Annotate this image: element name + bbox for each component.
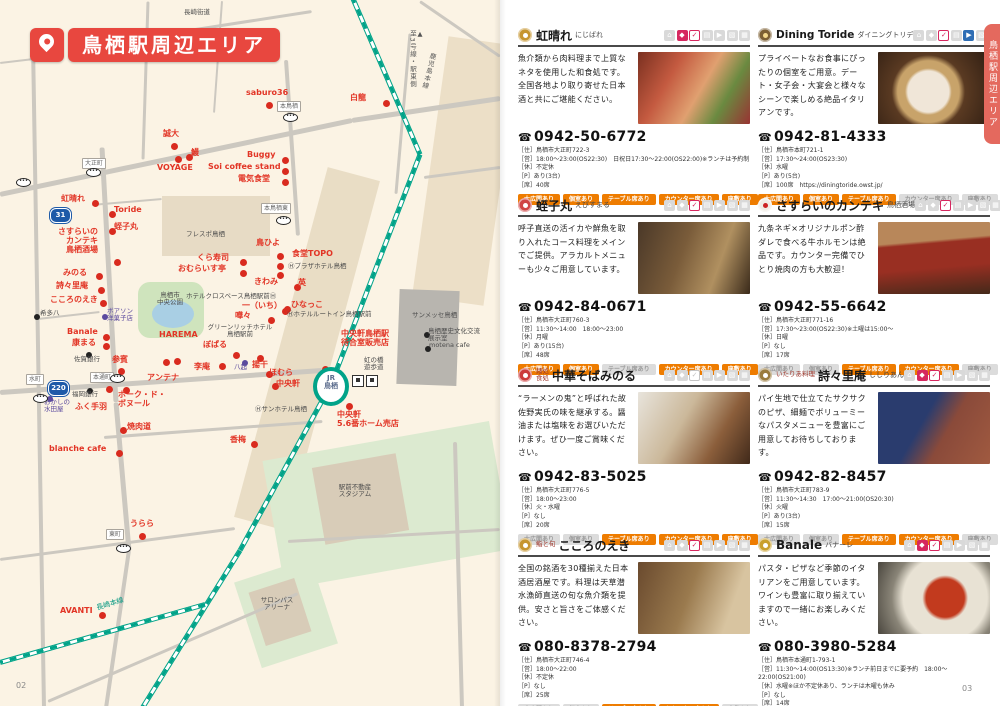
map-label: 虹晴れ [61,194,85,203]
map-label: 蛭子丸 [114,222,138,231]
detail-line: ［住］鳥栖市大正町771-16 [758,317,990,326]
amenity-icon-6: ▧ [727,370,738,381]
header-divider [518,45,750,47]
amenity-icons: ⌂◆✓▤▶▧▦ [904,370,990,381]
header-divider [518,555,750,557]
amenity-icon-6: ▧ [967,370,978,381]
restaurant-photo [878,222,990,294]
restaurant-card: 鮨と旬 こころのえき ⌂◆✓▤▶▧▦ 全国の銘酒を30種揃えた日本酒居酒屋です。… [518,537,750,706]
restaurant-description: パイ生地で仕立てたサクサクのピザ、細麺でボリューミーなパスタメニューを豊富にご用… [758,392,872,460]
map-label: 英 [298,278,306,287]
detail-line: ［営］11:30～14:00(OS13:30)※ランチ前日までに要予約 18:0… [758,666,990,683]
restaurant-photo [638,222,750,294]
detail-line: ［席］17席 [758,352,990,361]
amenity-icon-1: ⌂ [664,540,675,551]
amenity-icons: ⌂◆✓▤▶▧▦ [904,540,990,551]
amenity-icon-4: ▤ [702,30,713,41]
category-icon [758,368,772,382]
header-divider [758,45,990,47]
restaurant-details: ［住］鳥栖市大正町760-3［営］11:30～14:00 18:00～23:00… [518,317,750,360]
phone-number: ☎080-8378-2794 [518,639,750,655]
facility-pictogram-icon [366,375,378,387]
map-poi-dot [175,156,182,163]
card-header: 麺処 食処 中華そばみのる ⌂◆✓▤▶▧▦ [518,367,750,383]
map-label: 中央軒 5.6番ホーム売店 [337,410,399,428]
card-header: Banale バナーレ ⌂◆✓▤▶▧▦ [758,537,990,553]
restaurant-name: こころのえき [559,537,631,554]
restaurant-name-kana: ダイニングトリデ [857,30,913,40]
header-divider [758,215,990,217]
amenity-icon-2: ◆ [677,30,688,41]
map-label: 福岡銀行 [72,391,98,398]
map-label: VOYAGE [157,163,193,172]
amenity-icon-2: ◆ [677,200,688,211]
detail-line: ［P］あり(15台) [518,343,750,352]
amenity-icon-5: ▶ [965,200,976,211]
map-label: ほむら [269,368,293,377]
amenity-icon-5: ▶ [714,540,725,551]
restaurant-details: ［住］鳥栖市大正町771-16［営］17:30～23:00(OS22:30)※土… [758,317,990,360]
phone-number: ☎0942-83-5025 [518,469,750,485]
map-label: さすらいの カンテキ 鳥栖酒場 [50,227,98,255]
amenity-icon-6: ▧ [727,200,738,211]
detail-line: ［P］なし [518,683,750,692]
detail-line: ［休］月曜 [518,334,750,343]
phone-icon: ☎ [758,131,772,144]
bus-stop-icon: ••• [86,168,101,177]
map-label: 誠大 [163,129,179,138]
detail-line: ［住］鳥栖市大正町746-4 [518,657,750,666]
map-label: 本鳥栖東 [261,203,291,214]
restaurant-description: 九条ネギ×オリジナルポン酢ダレで食べる牛ホルモンは絶品です。カウンター完備でひと… [758,222,872,276]
map-label: 揚干 [252,360,268,369]
restaurant-name: 中華そばみのる [552,367,636,384]
map-poi-dot [96,273,103,280]
phone-icon: ☎ [518,301,532,314]
map-label: 本鳥栖 [277,101,301,112]
detail-line: ［席］25席 [518,692,750,701]
map-poi-dot [98,287,105,294]
guidebook-spread: JR 鳥栖 長崎街道saburo36白龍本鳥栖本鳥栖東誠大鰻VOYAGEBugg… [0,0,1000,706]
category-icon [758,538,772,552]
amenity-icon-2: ◆ [917,370,928,381]
bus-stop-icon: ••• [16,178,31,187]
stadium-building [312,453,409,545]
detail-line: ［休］火曜 [758,504,990,513]
map-poi-dot [219,363,226,370]
restaurant-name: Dining Toride [776,29,854,41]
map-poi-dot [277,263,284,270]
restaurant-details: ［住］鳥栖市大正町776-5［営］18:00～23:00［休］火・水曜［P］なし… [518,487,750,530]
amenity-icons: ⌂◆✓▤▶▧▦ [664,370,750,381]
map-label: 康まる [72,338,96,347]
map-poi-dot [240,270,247,277]
amenity-icon-3: ✓ [689,370,700,381]
detail-line: ［休］水曜 [758,164,990,173]
phone-number: ☎080-3980-5284 [758,639,990,655]
restaurant-card: さすらいのカンテキ 鳥栖酒場 ⌂◆✓▤▶▧▦ 九条ネギ×オリジナルポン酢ダレで食… [758,197,990,375]
map-poi-dot [99,612,106,619]
bus-stop-icon: ••• [283,113,298,122]
map-label: AVANTI [60,606,93,615]
map-poi-dot [92,200,99,207]
amenity-icon-6: ▧ [967,540,978,551]
map-label: ボアソン 洋菓子店 [107,308,133,323]
map-label: 白龍 [350,93,366,102]
restaurant-name-kana: にじばれ [575,30,603,40]
restaurant-card: 虹晴れ にじばれ ⌂◆✓▤▶▧▦ 魚介類から肉料理まで上質なネタを使用した和食処… [518,27,750,205]
detail-line: ［P］なし [758,343,990,352]
phone-icon: ☎ [518,471,532,484]
detail-line: ［休］火・水曜 [518,504,750,513]
bus-stop-icon: ••• [33,394,48,403]
map-poi-dot [174,358,181,365]
map-label: 食堂TOPO [292,249,333,258]
map-poi-dot [282,179,289,186]
detail-line: ［席］48席 [518,352,750,361]
restaurant-details: ［住］鳥栖市大正町783-9［営］11:30～14:30 17:00～21:00… [758,487,990,530]
map-label: 参賓 [112,355,128,364]
map-label: Ⓗプラザホテル鳥栖 [288,263,347,270]
route-shield: 31 [50,208,71,223]
walkway-pictogram-icon [352,375,364,387]
map-label: motena cafe [429,342,470,349]
map-title-banner: 鳥栖駅周辺エリア [30,28,280,62]
phone-icon: ☎ [518,641,532,654]
restaurant-photo [638,562,750,634]
map-poi-dot [100,300,107,307]
amenity-icon-6: ▧ [727,30,738,41]
restaurant-details: ［住］鳥栖市本町721-1［営］17:30～24:00(OS23:30)［休］水… [758,147,990,190]
jr-tosu-station-marker: JR 鳥栖 [313,367,349,406]
card-header: 蛭子丸 えびすまる ⌂◆✓▤▶▧▦ [518,197,750,213]
detail-line: ［住］鳥栖市大正町722-3 [518,147,750,156]
map-label: 鰻 [191,148,199,157]
phone-icon: ☎ [518,131,532,144]
detail-line: ［休］不定休 [518,674,750,683]
map-label: 鳥栖市 中央公園 [157,292,183,307]
restaurant-photo [878,392,990,464]
amenity-icons: ⌂◆✓▤▶▧▦ [915,200,1000,211]
map-poi-dot [277,272,284,279]
area-map: JR 鳥栖 長崎街道saburo36白龍本鳥栖本鳥栖東誠大鰻VOYAGEBugg… [0,0,500,706]
map-label: サロンパス アリーナ [261,597,294,612]
detail-line: ［休］日曜 [758,334,990,343]
amenity-icon-7: ▦ [739,370,750,381]
map-poi-dot [251,441,258,448]
amenity-icon-1: ⌂ [904,370,915,381]
map-label: 佐賀銀行 [74,356,100,363]
amenity-icon-3: ✓ [929,540,940,551]
phone-icon: ☎ [758,471,772,484]
restaurant-card: Banale バナーレ ⌂◆✓▤▶▧▦ パスタ・ピザなど季節のイタリアンをご用意… [758,537,990,706]
map-poi-dot [266,102,273,109]
map-label: Toride [114,205,142,214]
amenity-icon-5: ▶ [714,370,725,381]
map-label: 焼肉道 [127,422,151,431]
detail-line: ［営］11:30～14:00 18:00～23:00 [518,326,750,335]
amenity-icon-2: ◆ [677,540,688,551]
amenity-icon-1: ⌂ [664,370,675,381]
restaurant-details: ［住］鳥栖市本通町1-793-1［営］11:30～14:00(OS13:30)※… [758,657,990,706]
page-number-left: 02 [16,681,26,690]
map-label: saburo36 [246,88,288,97]
restaurant-category-label: いたりあ料理 [776,371,815,378]
restaurant-description: 呼子直送の活イカや鮮魚を取り入れたコース料理をメインでご提供。アラカルトメニュー… [518,222,632,276]
map-label: フレスポ鳥栖 [186,231,225,238]
map-label: 八起 [234,364,247,371]
detail-line: ［P］あり(5台) [758,173,990,182]
detail-line: ［P］なし [518,513,750,522]
map-label: アンテナ [147,373,179,382]
restaurant-category-label: 麺処 食処 [536,368,549,382]
map-label: みのる [63,268,87,277]
amenity-icon-6: ▧ [978,200,989,211]
restaurant-name-kana: バナーレ [825,540,853,550]
map-poi-dot [277,253,284,260]
map-label: おむらいす亭 [178,264,226,273]
phone-number: ☎0942-50-6772 [518,129,750,145]
map-poi-dot [139,533,146,540]
map-poi-dot [120,427,127,434]
detail-line: ［住］鳥栖市大正町783-9 [758,487,990,496]
detail-line: ［住］鳥栖市本町721-1 [758,147,990,156]
amenity-icon-5: ▶ [714,30,725,41]
map-label: 電気食堂 [238,174,270,183]
detail-line: ［住］鳥栖市大正町776-5 [518,487,750,496]
detail-line: ［休］水曜※ほか不定休あり、ランチは木曜も休み [758,683,990,692]
map-poi-dot [103,343,110,350]
phone-number: ☎0942-81-4333 [758,129,990,145]
phone-number: ☎0942-82-8457 [758,469,990,485]
map-label: ぼぱる [203,340,227,349]
map-poi-dot [114,259,121,266]
map-label: おかしの 水田屋 [44,399,70,414]
amenity-icon-7: ▦ [739,30,750,41]
restaurant-name-kana: ししりあん [869,370,904,380]
detail-line: ［休］不定休 [518,164,750,173]
map-label: 中央軒 [276,379,300,388]
map-label: Banale [67,327,98,336]
restaurant-photo [638,52,750,124]
card-header: さすらいのカンテキ 鳥栖酒場 ⌂◆✓▤▶▧▦ [758,197,990,213]
amenity-icon-3: ✓ [940,200,951,211]
header-divider [518,215,750,217]
railway-segment [140,549,242,706]
detail-line: ［営］17:30～23:00(OS22:30)※土曜は15:00～ [758,326,990,335]
map-label: 詩々里庵 [56,281,88,290]
map-label: 希多八 [40,310,60,317]
map-poi-dot [240,259,247,266]
restaurant-description: 全国の銘酒を30種揃えた日本酒居酒屋です。料理は天草潜水漁師直送の旬な魚介類を提… [518,562,632,630]
amenity-icon-2: ◆ [677,370,688,381]
map-label: 水町 [26,374,44,385]
restaurant-name-kana: 鳥栖酒場 [887,200,915,210]
amenity-icon-7: ▦ [990,200,1000,211]
amenity-icon-2: ◆ [926,30,937,41]
restaurant-photo [878,562,990,634]
amenity-icon-2: ◆ [928,200,939,211]
restaurant-card: 蛭子丸 えびすまる ⌂◆✓▤▶▧▦ 呼子直送の活イカや鮮魚を取り入れたコース料理… [518,197,750,375]
restaurant-listings: 03 虹晴れ にじばれ ⌂◆✓▤▶▧▦ 魚介類から肉料理まで上質なネタを使用した… [500,0,1000,706]
page-title: 鳥栖駅周辺エリア [68,28,280,62]
restaurant-name: さすらいのカンテキ [776,197,884,214]
phone-icon: ☎ [758,641,772,654]
map-label: 東町 [106,529,124,540]
map-label: 鳥ひよ [256,238,280,247]
restaurant-details: ［住］鳥栖市大正町746-4［営］18:00～22:00［休］不定休［P］なし［… [518,657,750,700]
page-fold [494,0,506,706]
detail-line: ［住］鳥栖市本通町1-793-1 [758,657,990,666]
restaurant-description: 魚介類から肉料理まで上質なネタを使用した和食処です。全国各地より取り寄せた日本酒… [518,52,632,106]
card-header: 鮨と旬 こころのえき ⌂◆✓▤▶▧▦ [518,537,750,553]
category-icon [518,28,532,42]
amenity-icon-5: ▶ [963,30,974,41]
amenity-icon-1: ⌂ [904,540,915,551]
category-icon [518,198,532,212]
amenity-icon-3: ✓ [929,370,940,381]
map-poi-dot [282,157,289,164]
map-poi-dot [103,334,110,341]
restaurant-name-kana: えびすまる [575,200,610,210]
bus-stop-icon: ••• [116,544,131,553]
amenity-icon-4: ▤ [702,370,713,381]
map-poi-dot [163,359,170,366]
map-label: うらら [130,519,154,528]
header-divider [758,385,990,387]
category-icon [518,368,532,382]
card-header: いたりあ料理 詩々里庵 ししりあん ⌂◆✓▤▶▧▦ [758,367,990,383]
detail-line: ［席］14席 [758,700,990,706]
restaurant-photo [878,52,990,124]
map-label: 虹の橋 遊歩道 [364,357,384,372]
card-header: 虹晴れ にじばれ ⌂◆✓▤▶▧▦ [518,27,750,43]
map-label: 一（いち） [242,301,282,310]
detail-line: ［席］40席 [518,182,750,191]
map-poi-dot [106,386,113,393]
map-label: Ⓗサンホテル鳥栖 [255,406,307,413]
road-segment [0,58,34,64]
amenity-icon-1: ⌂ [664,200,675,211]
amenity-icon-3: ✓ [689,200,700,211]
map-label: グリーンリッチホテル 鳥栖駅前 [208,324,273,339]
restaurant-description: パスタ・ピザなど季節のイタリアンをご用意しています。ワインも豊富に取り揃えていま… [758,562,872,630]
detail-line: ［営］11:30～14:30 17:00～21:00(OS20:30) [758,496,990,505]
detail-line: ［住］鳥栖市大正町760-3 [518,317,750,326]
amenity-icons: ⌂◆✓▤▶▧▦ [664,30,750,41]
restaurant-name: 詩々里庵 [818,367,866,384]
detail-line: ［席］100席 https://diningtoride.owst.jp/ [758,182,990,191]
detail-line: ［P］あり(3台) [758,513,990,522]
amenity-icon-4: ▤ [951,30,962,41]
map-label: こころのえき [50,295,98,304]
amenity-icons: ⌂◆✓▤▶▧▦ [664,540,750,551]
map-label: ホテルクロスベース鳥栖駅前Ⓗ [186,293,276,300]
amenity-icon-4: ▤ [702,540,713,551]
amenity-icon-5: ▶ [714,200,725,211]
amenity-icon-5: ▶ [954,370,965,381]
amenity-icon-3: ✓ [689,540,700,551]
amenity-icon-3: ✓ [689,30,700,41]
amenity-icon-1: ⌂ [915,200,926,211]
map-label: 嘩々 [235,311,251,320]
restaurant-card: 麺処 食処 中華そばみのる ⌂◆✓▤▶▧▦ “ラーメンの鬼”と呼ばれた故佐野実氏… [518,367,750,545]
restaurant-category-label: 鮨と旬 [536,541,556,548]
amenity-icon-4: ▤ [942,540,953,551]
amenity-icon-4: ▤ [953,200,964,211]
detail-line: ［P］なし [758,692,990,701]
amenity-icon-7: ▦ [979,370,990,381]
map-label: ひなっこ [291,300,323,309]
map-poi-dot [233,352,240,359]
header-divider [518,385,750,387]
map-label: HAREMA [159,330,198,339]
map-label: 長崎街道 [184,9,210,16]
map-label: Ⓗホテルルートイン鳥栖駅前 [287,311,372,318]
map-label: くら寿司 [197,253,229,262]
map-poi-dot [383,100,390,107]
amenity-icon-7: ▦ [739,200,750,211]
amenity-icon-3: ✓ [938,30,949,41]
map-poi-dot [171,143,178,150]
map-label: 香梅 [230,435,246,444]
restaurant-name: 虹晴れ [536,27,572,44]
road-segment [142,1,150,159]
map-poi-dot [346,403,353,410]
amenity-icon-1: ⌂ [913,30,924,41]
card-header: Dining Toride ダイニングトリデ ⌂◆✓▤▶▧▦ [758,27,990,43]
detail-line: ［P］あり(3台) [518,173,750,182]
map-label: blanche cafe [49,444,106,453]
bus-stop-icon: ••• [276,216,291,225]
section-side-tab: 鳥栖駅周辺エリア [984,24,1000,144]
route-shield: 220 [48,381,69,396]
phone-number: ☎0942-84-0671 [518,299,750,315]
amenity-icon-7: ▦ [739,540,750,551]
map-pin-icon [30,28,64,62]
amenity-icon-4: ▤ [942,370,953,381]
page-number-right: 03 [962,684,972,693]
phone-icon: ☎ [758,301,772,314]
amenity-icon-1: ⌂ [664,30,675,41]
map-poi-dot [282,168,289,175]
phone-number: ☎0942-55-6642 [758,299,990,315]
detail-line: ［席］20席 [518,522,750,531]
building-block [162,196,270,256]
restaurant-name: Banale [776,538,822,552]
map-label: Buggy [247,150,275,159]
restaurant-card: Dining Toride ダイニングトリデ ⌂◆✓▤▶▧▦ プライベートなお食… [758,27,990,205]
restaurant-details: ［住］鳥栖市大正町722-3［営］18:00～23:00(OS22:30) 日祝… [518,147,750,190]
category-icon [758,198,772,212]
map-label: きわみ [254,277,278,286]
restaurant-name: 蛭子丸 [536,197,572,214]
map-poi-dot [116,450,123,457]
map-label: ポーク・ド・ ボヌール [118,390,166,408]
map-label: 中央軒鳥栖駅 待合室販売店 [341,329,389,347]
amenity-icon-7: ▦ [979,540,990,551]
amenity-icon-5: ▶ [954,540,965,551]
detail-line: ［営］17:30～24:00(OS23:30) [758,156,990,165]
header-divider [758,555,990,557]
amenity-icon-2: ◆ [917,540,928,551]
detail-line: ［席］15席 [758,522,990,531]
amenity-icon-6: ▧ [727,540,738,551]
restaurant-photo [638,392,750,464]
bus-stop-icon: ••• [110,374,125,383]
restaurant-description: “ラーメンの鬼”と呼ばれた故佐野実氏の味を継承する。醤油または塩味をお選びいただ… [518,392,632,460]
category-icon [758,28,772,42]
